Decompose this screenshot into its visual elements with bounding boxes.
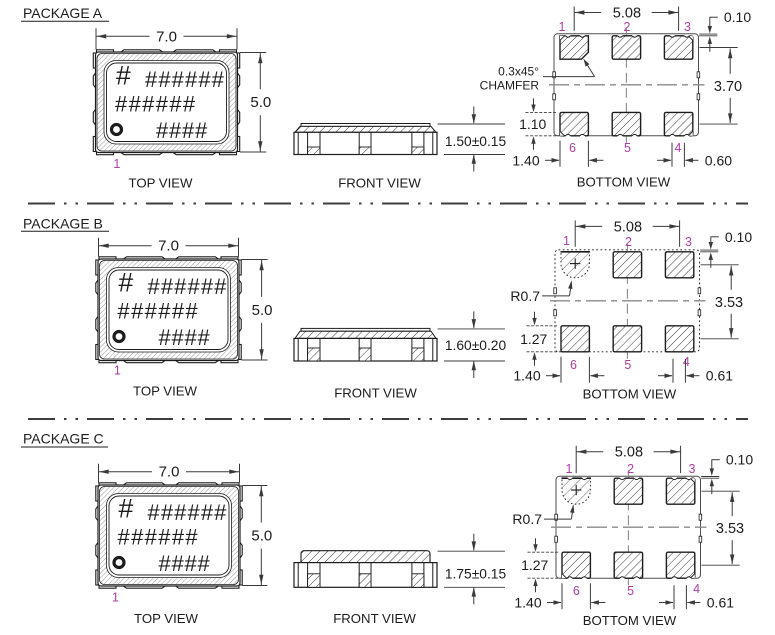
svg-text:#: # bbox=[116, 60, 131, 90]
svg-text:7.0: 7.0 bbox=[158, 238, 179, 255]
svg-text:######: ###### bbox=[118, 299, 200, 324]
svg-text:0.3x45°: 0.3x45° bbox=[498, 65, 539, 79]
svg-text:3.53: 3.53 bbox=[715, 295, 743, 311]
svg-text:####: #### bbox=[159, 325, 211, 350]
svg-text:5.08: 5.08 bbox=[615, 445, 643, 461]
svg-text:1.40: 1.40 bbox=[513, 368, 540, 384]
svg-text:TOP VIEW: TOP VIEW bbox=[134, 611, 199, 626]
svg-text:######: ###### bbox=[145, 67, 225, 92]
svg-text:5.0: 5.0 bbox=[252, 302, 273, 319]
svg-text:FRONT VIEW: FRONT VIEW bbox=[334, 386, 417, 401]
svg-text:0.61: 0.61 bbox=[706, 368, 733, 384]
svg-text:####: #### bbox=[156, 118, 208, 143]
svg-text:3: 3 bbox=[689, 462, 696, 476]
svg-text:######: ###### bbox=[148, 500, 228, 525]
svg-text:3: 3 bbox=[684, 20, 691, 34]
svg-text:1.60±0.20: 1.60±0.20 bbox=[445, 338, 507, 353]
svg-text:PACKAGE A: PACKAGE A bbox=[23, 5, 103, 21]
svg-text:######: ###### bbox=[118, 525, 200, 550]
svg-text:1.27: 1.27 bbox=[520, 331, 547, 347]
svg-text:0.10: 0.10 bbox=[724, 9, 751, 25]
svg-text:#: # bbox=[119, 267, 134, 297]
svg-text:5.0: 5.0 bbox=[251, 528, 272, 545]
svg-text:######: ###### bbox=[148, 274, 228, 299]
svg-text:1.75±0.15: 1.75±0.15 bbox=[445, 566, 507, 581]
svg-text:3.70: 3.70 bbox=[714, 79, 742, 95]
svg-text:1: 1 bbox=[563, 234, 570, 248]
svg-text:7.0: 7.0 bbox=[156, 28, 177, 45]
svg-text:3.53: 3.53 bbox=[716, 521, 744, 537]
svg-text:FRONT VIEW: FRONT VIEW bbox=[338, 176, 421, 191]
svg-text:2: 2 bbox=[624, 20, 631, 34]
svg-text:2: 2 bbox=[625, 235, 632, 249]
svg-text:PACKAGE B: PACKAGE B bbox=[23, 216, 103, 232]
svg-text:1.50±0.15: 1.50±0.15 bbox=[445, 134, 507, 149]
svg-text:R0.7: R0.7 bbox=[510, 288, 540, 304]
svg-text:####: #### bbox=[159, 551, 211, 576]
svg-text:1: 1 bbox=[112, 591, 119, 605]
svg-text:PACKAGE C: PACKAGE C bbox=[23, 431, 104, 447]
svg-text:5.08: 5.08 bbox=[614, 219, 642, 235]
svg-text:4: 4 bbox=[675, 141, 682, 155]
svg-text:1.40: 1.40 bbox=[512, 152, 539, 168]
svg-text:5.08: 5.08 bbox=[613, 6, 641, 22]
svg-text:6: 6 bbox=[569, 141, 576, 155]
svg-text:5: 5 bbox=[624, 358, 631, 372]
svg-text:BOTTOM VIEW: BOTTOM VIEW bbox=[577, 175, 671, 190]
svg-text:TOP VIEW: TOP VIEW bbox=[133, 384, 198, 399]
svg-text:2: 2 bbox=[627, 462, 634, 476]
svg-text:5: 5 bbox=[627, 584, 634, 598]
svg-text:3: 3 bbox=[685, 235, 692, 249]
svg-text:4: 4 bbox=[693, 582, 700, 596]
svg-text:7.0: 7.0 bbox=[159, 464, 180, 481]
svg-text:BOTTOM VIEW: BOTTOM VIEW bbox=[583, 613, 677, 628]
svg-text:1.40: 1.40 bbox=[514, 595, 541, 611]
svg-text:1.10: 1.10 bbox=[519, 116, 546, 132]
svg-text:5: 5 bbox=[624, 141, 631, 155]
svg-text:0.10: 0.10 bbox=[725, 229, 752, 245]
svg-text:5.0: 5.0 bbox=[250, 94, 271, 111]
svg-text:#: # bbox=[119, 493, 134, 523]
svg-text:0.61: 0.61 bbox=[707, 595, 734, 611]
svg-text:1.27: 1.27 bbox=[521, 557, 548, 573]
svg-text:6: 6 bbox=[570, 358, 577, 372]
svg-text:1: 1 bbox=[559, 20, 566, 34]
svg-text:4: 4 bbox=[683, 355, 690, 369]
svg-text:FRONT VIEW: FRONT VIEW bbox=[333, 611, 416, 626]
svg-text:6: 6 bbox=[573, 584, 580, 598]
svg-text:1: 1 bbox=[114, 364, 121, 378]
svg-text:0.10: 0.10 bbox=[726, 452, 753, 468]
svg-text:R0.7: R0.7 bbox=[512, 511, 542, 527]
svg-text:TOP VIEW: TOP VIEW bbox=[129, 176, 194, 191]
svg-text:1: 1 bbox=[566, 462, 573, 476]
svg-text:CHAMFER: CHAMFER bbox=[480, 79, 540, 93]
svg-text:0.60: 0.60 bbox=[705, 152, 732, 168]
svg-text:BOTTOM VIEW: BOTTOM VIEW bbox=[583, 387, 677, 402]
svg-text:######: ###### bbox=[115, 92, 197, 117]
svg-text:1: 1 bbox=[113, 157, 120, 171]
